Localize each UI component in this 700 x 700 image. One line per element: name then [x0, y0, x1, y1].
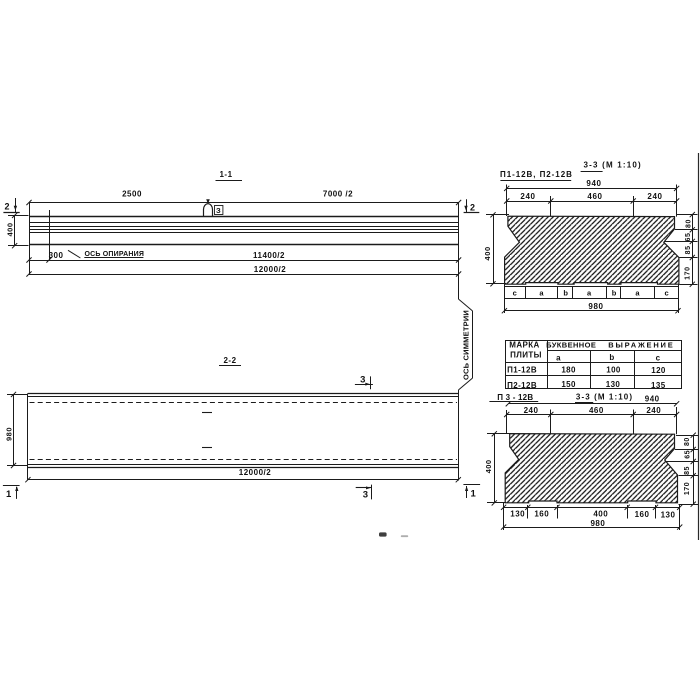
svg-text:940: 940: [645, 395, 660, 404]
svg-text:400: 400: [484, 459, 493, 473]
svg-text:300: 300: [49, 251, 64, 260]
svg-text:а: а: [556, 354, 561, 363]
svg-text:980: 980: [588, 302, 603, 311]
svg-text:130: 130: [606, 380, 621, 389]
svg-text:с: с: [665, 289, 670, 298]
svg-text:П1-12В: П1-12В: [507, 366, 537, 375]
svg-text:980: 980: [590, 519, 605, 528]
svg-text:3: 3: [363, 490, 369, 501]
svg-text:а: а: [539, 289, 544, 298]
svg-text:65: 65: [684, 450, 691, 459]
svg-text:с: с: [656, 354, 661, 363]
svg-text:11400/2: 11400/2: [253, 251, 285, 260]
svg-text:240: 240: [646, 406, 661, 415]
svg-text:ПЛИТЫ: ПЛИТЫ: [510, 350, 542, 359]
svg-text:БУКВЕННОЕ: БУКВЕННОЕ: [546, 340, 596, 349]
svg-text:12000/2: 12000/2: [254, 265, 286, 274]
svg-text:400: 400: [483, 246, 492, 260]
svg-text:135: 135: [651, 381, 666, 390]
svg-text:85: 85: [684, 466, 691, 475]
svg-text:80: 80: [684, 437, 691, 446]
svg-text:1: 1: [6, 489, 12, 500]
svg-text:85: 85: [685, 245, 692, 254]
svg-text:940: 940: [586, 179, 601, 188]
svg-text:180: 180: [561, 366, 576, 375]
svg-text:ОСЬ ОПИРАНИЯ: ОСЬ ОПИРАНИЯ: [85, 251, 145, 258]
svg-text:с: с: [513, 289, 518, 298]
svg-text:МАРКА: МАРКА: [509, 340, 539, 349]
svg-text:400: 400: [593, 510, 608, 519]
svg-text:3-3 (М 1:10): 3-3 (М 1:10): [576, 393, 633, 402]
svg-text:3-3 (М 1:10): 3-3 (М 1:10): [584, 160, 642, 169]
svg-text:3: 3: [360, 375, 366, 386]
svg-text:ОСЬ СИММЕТРИИ: ОСЬ СИММЕТРИИ: [462, 310, 471, 380]
svg-text:З: З: [216, 206, 221, 215]
svg-text:980: 980: [4, 427, 13, 441]
svg-text:1: 1: [471, 489, 477, 500]
svg-text:80: 80: [685, 219, 692, 228]
svg-text:2: 2: [470, 203, 476, 213]
svg-text:П1-12В, П2-12В: П1-12В, П2-12В: [500, 170, 573, 179]
svg-text:b: b: [609, 353, 614, 362]
svg-text:b: b: [612, 289, 617, 298]
svg-text:а: а: [635, 289, 640, 298]
svg-text:240: 240: [647, 192, 662, 201]
svg-text:100: 100: [606, 366, 621, 375]
svg-text:П 3 - 12В: П 3 - 12В: [497, 393, 533, 402]
svg-text:65: 65: [685, 233, 692, 242]
svg-text:ВЫРАЖЕНИЕ: ВЫРАЖЕНИЕ: [608, 341, 674, 350]
svg-text:130: 130: [661, 511, 676, 520]
svg-text:1-1: 1-1: [219, 170, 232, 179]
svg-text:П2-12В: П2-12В: [507, 381, 537, 390]
svg-text:а: а: [587, 289, 592, 298]
svg-text:b: b: [563, 289, 568, 298]
svg-text:130: 130: [510, 510, 525, 519]
svg-text:460: 460: [587, 192, 602, 201]
svg-text:460: 460: [589, 406, 604, 415]
svg-text:400: 400: [6, 222, 15, 236]
svg-text:2-2: 2-2: [223, 356, 236, 365]
svg-text:120: 120: [651, 366, 666, 375]
svg-text:160: 160: [635, 510, 650, 519]
svg-text:240: 240: [524, 406, 539, 415]
svg-text:170: 170: [684, 482, 691, 495]
svg-text:7000 /2: 7000 /2: [323, 190, 353, 199]
svg-text:150: 150: [561, 380, 576, 389]
svg-text:2500: 2500: [122, 190, 142, 199]
svg-text:240: 240: [520, 192, 535, 201]
svg-text:170: 170: [684, 266, 691, 279]
svg-text:160: 160: [534, 510, 549, 519]
svg-text:12000/2: 12000/2: [239, 468, 271, 477]
svg-text:2: 2: [5, 202, 11, 212]
